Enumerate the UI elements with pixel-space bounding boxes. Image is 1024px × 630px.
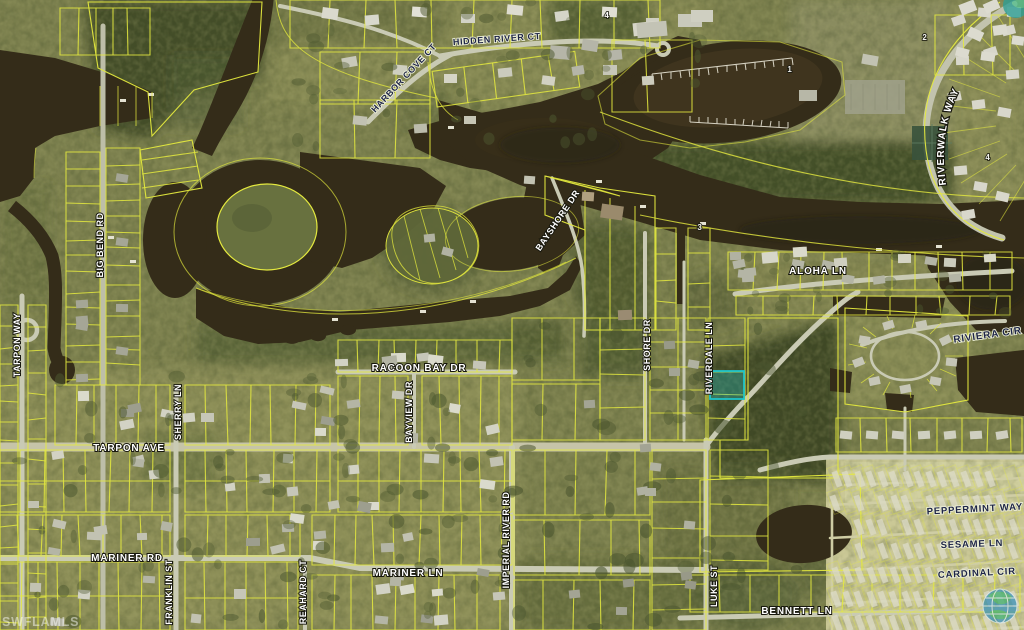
svg-text:RACOON BAY DR: RACOON BAY DR <box>372 363 467 374</box>
svg-text:SWFLAMLS: SWFLAMLS <box>2 615 79 629</box>
svg-text:SESAME LN: SESAME LN <box>940 538 1003 551</box>
svg-text:3: 3 <box>697 223 702 232</box>
svg-text:RIVERDALE LN: RIVERDALE LN <box>704 322 714 395</box>
svg-text:4: 4 <box>985 153 990 162</box>
svg-text:MARINER RD: MARINER RD <box>91 553 163 564</box>
svg-text:SHERRY LN: SHERRY LN <box>173 384 183 440</box>
svg-text:IMPERIAL RIVER RD: IMPERIAL RIVER RD <box>501 492 511 589</box>
svg-text:ALOHA LN: ALOHA LN <box>789 266 847 277</box>
svg-text:REAHARD CT: REAHARD CT <box>298 560 308 625</box>
svg-text:LUKE ST: LUKE ST <box>709 565 719 607</box>
svg-text:TARPON WAY: TARPON WAY <box>12 313 22 378</box>
svg-text:BIG BEND RD: BIG BEND RD <box>95 212 105 277</box>
svg-text:SHORE DR: SHORE DR <box>642 319 652 371</box>
svg-text:1: 1 <box>787 65 792 74</box>
svg-text:2: 2 <box>922 33 927 42</box>
svg-text:BENNETT LN: BENNETT LN <box>761 606 832 617</box>
svg-text:BAYVIEW DR: BAYVIEW DR <box>404 381 414 443</box>
svg-text:MARINER LN: MARINER LN <box>373 568 444 579</box>
svg-text:4: 4 <box>604 11 609 20</box>
svg-text:FRANKLIN ST: FRANKLIN ST <box>164 559 174 625</box>
svg-text:TARPON AVE: TARPON AVE <box>93 443 165 454</box>
